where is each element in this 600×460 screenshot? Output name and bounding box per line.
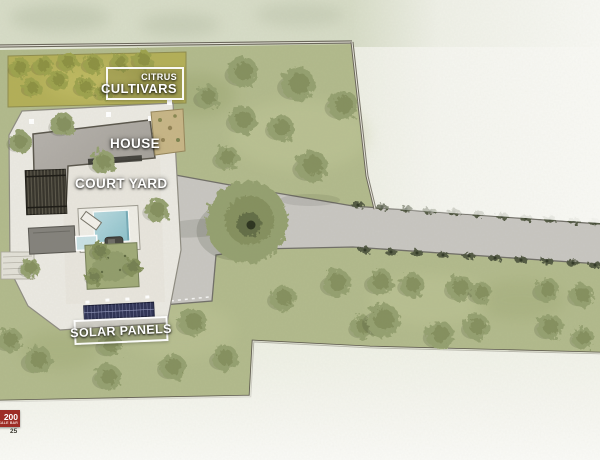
site-plan-drawing	[0, 0, 600, 460]
solar-label: SOLAR PANELS	[70, 321, 172, 339]
house-label: HOUSE	[110, 136, 160, 151]
paper-texture	[0, 0, 600, 460]
scale-badge: 200 SCALE BAR	[0, 410, 20, 427]
citrus-label-line2: CULTIVARS	[101, 82, 177, 96]
site-plan: CITRUS CULTIVARS HOUSE COURT YARD SOLAR …	[0, 0, 600, 460]
scale-badge-caption: SCALE BAR	[0, 421, 18, 425]
citrus-cultivars-label-box: CITRUS CULTIVARS	[106, 67, 184, 100]
scale-badge-value: 200	[4, 413, 18, 421]
citrus-label-line1: CITRUS	[141, 72, 177, 82]
scale-badge-number: 25	[10, 428, 17, 435]
solar-panels-label-box: SOLAR PANELS	[73, 316, 168, 345]
courtyard-label: COURT YARD	[75, 176, 168, 191]
